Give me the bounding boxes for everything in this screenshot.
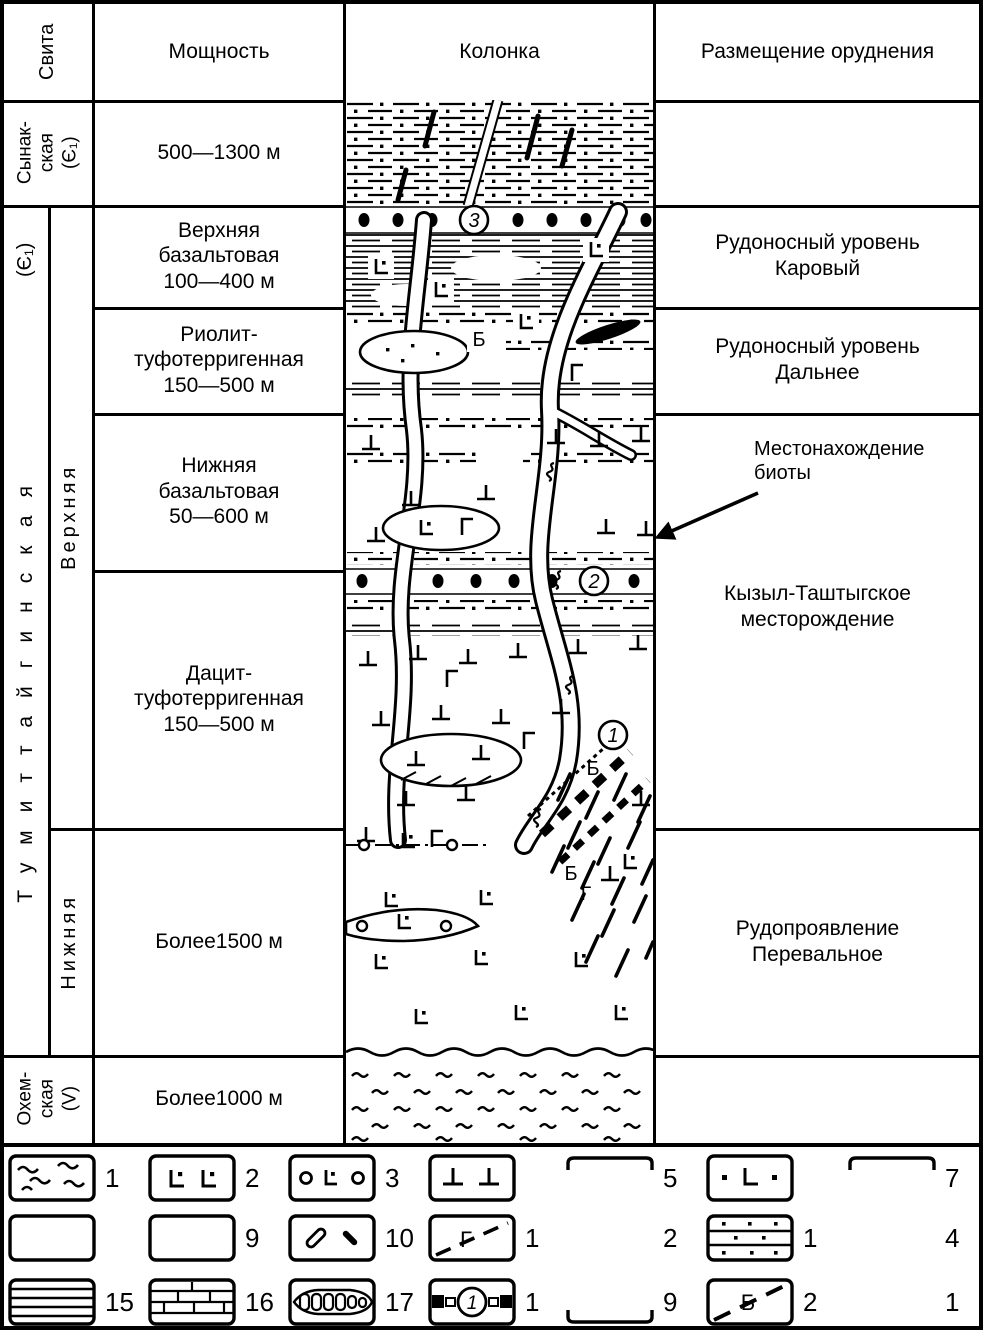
header-suite: Свита [4,4,92,100]
thickness-row-upper-basalt: Верхняя базальтовая 100—400 м [95,205,343,307]
suite-tumit-index-label: (Є₁) [14,238,38,282]
legend-symbol-limestone [148,1278,236,1326]
legend-b-letter: Б [741,1290,755,1315]
legend-symbol-dike-rods [288,1214,376,1262]
subsuite-lower-label: Нижняя [58,894,82,990]
stratigraphic-figure: Свита Мощность Колонка Размещение орудне… [0,0,983,1330]
ore-level-2: 2 [346,567,653,596]
legend-item-8 [8,1212,150,1264]
ore-row-kyzyl: Местонахождение биоты Кызыл-Таштыгское м… [656,413,979,828]
legend-symbol-ore-level: 1 [428,1278,516,1326]
thickness-row-riolite: Риолит- туфотерригенная 150—500 м [95,307,343,413]
legend-item-6 [706,1152,848,1204]
legend-item-4 [428,1152,570,1204]
biota-note: Местонахождение биоты [754,437,964,485]
legend-ore-index: 1 [467,1293,478,1314]
ore-level-2-number: 2 [587,571,599,593]
legend-item-2: 2 [148,1152,290,1204]
subsuite-lower: Нижняя [48,828,92,1055]
header-thickness: Мощность [95,4,343,100]
legend-item-13: 1 [706,1212,848,1264]
legend-symbol-dotted-basalt [706,1154,794,1202]
letter-b-lower: Б [564,863,577,885]
legend-symbol-open-bottom [566,1278,654,1326]
legend-item-5: 5 [566,1152,708,1204]
biota-arrow [646,485,766,555]
header-suite-label: Свита [36,8,60,96]
legend-number: 4 [945,1223,975,1254]
legend-number: 1 [525,1287,555,1318]
letter-b-upper: Б [472,329,485,351]
header-column: Колонка [346,4,653,100]
legend-gamma-letter: Г [460,1227,472,1252]
ore-level-3-number: 3 [468,210,479,232]
letter-g-lower: Г [581,884,591,905]
legend-number: 5 [663,1163,693,1194]
legend-number: 15 [105,1287,135,1318]
legend-number: 3 [385,1163,415,1194]
legend-symbol-open-top [566,1154,654,1202]
legend-symbol-tuff-sandstone [706,1214,794,1262]
legend-symbol-conglomerate [288,1278,376,1326]
legend-symbol-basalt [148,1154,236,1202]
suite-synakskaya: Сынак- ская (Є₁) [4,100,92,205]
suite-synakskaya-label: Сынак- ская (Є₁) [14,109,81,197]
legend-item-17: 17 [288,1276,430,1328]
legend-item-19: 9 [566,1276,708,1328]
legend-number: 16 [245,1287,275,1318]
legend-number: 2 [803,1287,833,1318]
legend-item-1: 1 [8,1152,150,1204]
thickness-row-synak: 500—1300 м [95,100,343,205]
ore-row-dalnee: Рудоносный уровень Дальнее [656,307,979,413]
legend-number: 17 [385,1287,415,1318]
legend-symbol-open-top [848,1154,936,1202]
kyzyl-label: Кызыл-Таштыгское месторождение [656,581,979,634]
legend-symbol-b-dash: Б [706,1278,794,1326]
legend-item-16: 16 [148,1276,290,1328]
legend-symbol-none [566,1214,654,1262]
legend-symbol-siltstone [8,1278,96,1326]
legend-number: 1 [105,1163,135,1194]
legend-symbol-amygdaloidal [288,1154,376,1202]
legend-item-9: 9 [148,1212,290,1264]
legend-item-12: 2 [566,1212,708,1264]
table-line [653,1055,979,1058]
legend-symbol-none [848,1278,936,1326]
thickness-row-lower-suite: Более1500 м [95,828,343,1055]
suite-okhemskaya: Охем- ская (V) [4,1055,92,1143]
legend-item-7: 7 [848,1152,983,1204]
legend-symbol-empty [148,1214,236,1262]
legend-number: 1 [803,1223,833,1254]
legend-symbol-diabase [428,1154,516,1202]
header-ore-placement: Размещение оруднения [656,4,979,100]
thickness-row-dacite: Дацит- туфотерригенная 150—500 м [95,570,343,828]
legend-number: 7 [945,1163,975,1194]
legend-symbol-wavy [8,1154,96,1202]
legend-item-3: 3 [288,1152,430,1204]
subsuite-upper: Верхняя [48,205,92,828]
thickness-row-lower-basalt: Нижняя базальтовая 50—600 м [95,413,343,570]
legend-item-10: 10 [288,1212,430,1264]
lithologic-column: 3 2 [346,100,653,1143]
ore-row-karovy: Рудоносный уровень Каровый [656,205,979,307]
suite-tumittayginskaya-label: Тумиттайгинская [14,468,39,903]
border-right [979,0,983,1330]
legend-item-14: 4 [848,1212,983,1264]
legend-number: 1 [525,1223,555,1254]
legend-item-15: 15 [8,1276,150,1328]
legend-item-18: 1 1 [428,1276,570,1328]
legend-symbol-none [848,1214,936,1262]
legend-item-20: Б 2 [706,1276,848,1328]
legend-symbol-gamma-dash: Г [428,1214,516,1262]
ore-row-perevalnoe: Рудопроявление Перевальное [656,828,979,1055]
legend-number: 10 [385,1223,415,1254]
suite-tumit-index: (Є₁) [4,205,48,315]
legend-number: 2 [245,1163,275,1194]
legend-item-11: Г 1 [428,1212,570,1264]
legend-item-21: 1 [848,1276,983,1328]
suite-okhemskaya-label: Охем- ская (V) [14,1055,81,1143]
suite-tumittayginskaya: Тумиттайгинская [4,315,48,1055]
legend-number: 2 [663,1223,693,1254]
ore-level-1-number: 1 [607,725,618,747]
thickness-row-okhem: Более1000 м [95,1055,343,1143]
legend-number: 1 [945,1287,975,1318]
legend-number: 9 [663,1287,693,1318]
subsuite-upper-label: Верхняя [58,463,82,569]
table-line [4,1143,979,1147]
legend-symbol-empty [8,1214,96,1262]
legend-number: 9 [245,1223,275,1254]
